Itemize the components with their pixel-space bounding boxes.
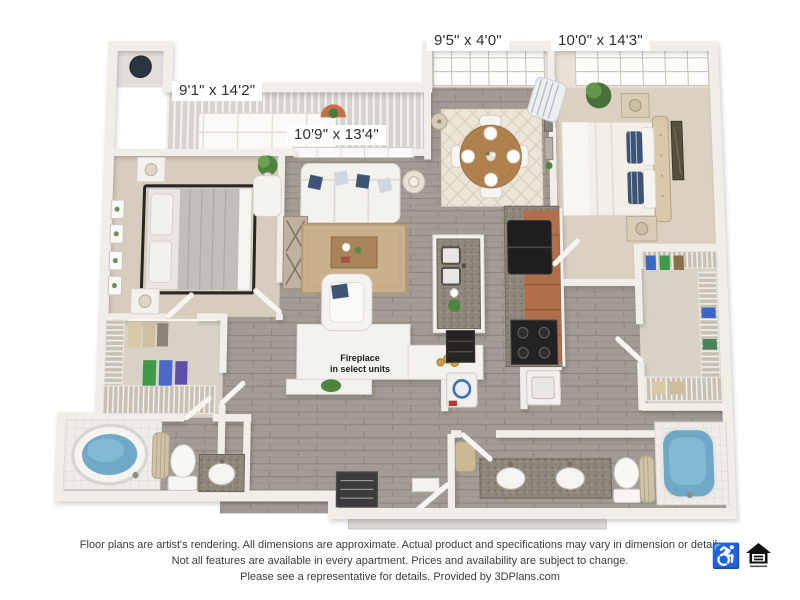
wheelchair-accessible-icon: ♿ [711,542,741,572]
fireplace-note-line1: Fireplace [316,353,404,364]
sofa [301,164,400,223]
water-heater [129,56,151,78]
stove [511,320,558,364]
shower-curtain [639,457,655,503]
ledge-plant [321,379,341,392]
kitchen-sink [442,247,460,264]
bed2-navy-pillow [626,131,643,163]
bed1-pillow [149,241,172,282]
folded-clothes [651,381,666,394]
dimension-label-living-room: 10'9" x 13'4" [287,125,386,145]
bed2-pillow [642,127,655,165]
detergent [449,401,457,406]
folded-clothes [670,381,685,394]
bathtub-2-water [668,437,706,485]
burner [539,347,549,358]
hanging-clothes [127,322,141,347]
dimension-label-sunroom: 9'5" x 4'0" [427,31,509,51]
lamp [139,295,151,308]
armchair-pillow [331,283,349,299]
floor-plan-render [39,19,762,538]
hanging-clothes [157,323,169,346]
bed1-pillow [150,194,173,235]
burner [518,327,528,338]
floor-plan-svg [39,19,762,538]
hanging-clothes [674,256,684,270]
lamp [629,99,641,111]
dryer-door [532,377,555,398]
burner [518,347,528,358]
plate [484,127,497,140]
sofa-pillow [334,170,349,185]
pantry-shelves [446,331,474,363]
plate [462,150,475,163]
sink-1 [208,463,235,485]
island-plant [448,299,460,312]
equal-housing-opportunity-icon [745,542,772,572]
dimension-label-bedroom1: 9'1" x 14'2" [172,81,262,101]
bedroom1-window [293,147,413,157]
folded-clothes [701,308,715,318]
bed2-navy-pillow [627,172,644,205]
dimension-label-bedroom2: 10'0" x 14'3" [551,31,650,51]
floor-plan-page: 9'1" x 14'2" 10'9" x 13'4" 9'5" x 4'0" 1… [0,0,800,600]
disclaimer-line2: Not all features are available in every … [0,554,800,570]
bed1-duvet [177,189,239,290]
burner [539,327,549,338]
sofa-pillow [356,174,371,189]
table-lamp [409,177,419,187]
toilet-1 [170,445,195,478]
fireplace-note-line2: in select units [316,364,404,375]
toilet-tank [614,489,641,502]
plate [484,173,497,186]
woven-wall-art [545,137,553,159]
toilet-tank [168,476,197,490]
disclaimer-line1: Floor plans are artist's rendering. All … [0,538,800,554]
toilet-2 [614,458,639,488]
footer-disclaimer: Floor plans are artist's rendering. All … [0,538,800,585]
sink-2a [496,468,525,490]
lamp [636,223,648,235]
hanging-clothes [159,360,173,386]
fireplace-note: Fireplace in select units [316,353,404,375]
balcony-plant [328,108,338,118]
sink-2b [556,468,585,490]
coffee-table [331,237,377,268]
faucet [461,263,466,268]
hanging-clothes [646,256,656,270]
hanging-clothes [660,256,670,270]
bed2-pillow [643,170,656,209]
accent-chair [253,176,281,217]
hanging-clothes [175,361,188,384]
hanging-clothes [143,322,156,347]
lamp [145,164,157,176]
washer-door [454,380,470,397]
plate [507,150,520,163]
hanging-clothes [142,360,156,386]
entry-console [412,478,439,491]
folded-clothes [703,339,718,350]
kitchen-sink [442,268,460,285]
footer-icons: ♿ [711,542,772,572]
disclaimer-line3: Please see a representative for details.… [0,570,800,586]
